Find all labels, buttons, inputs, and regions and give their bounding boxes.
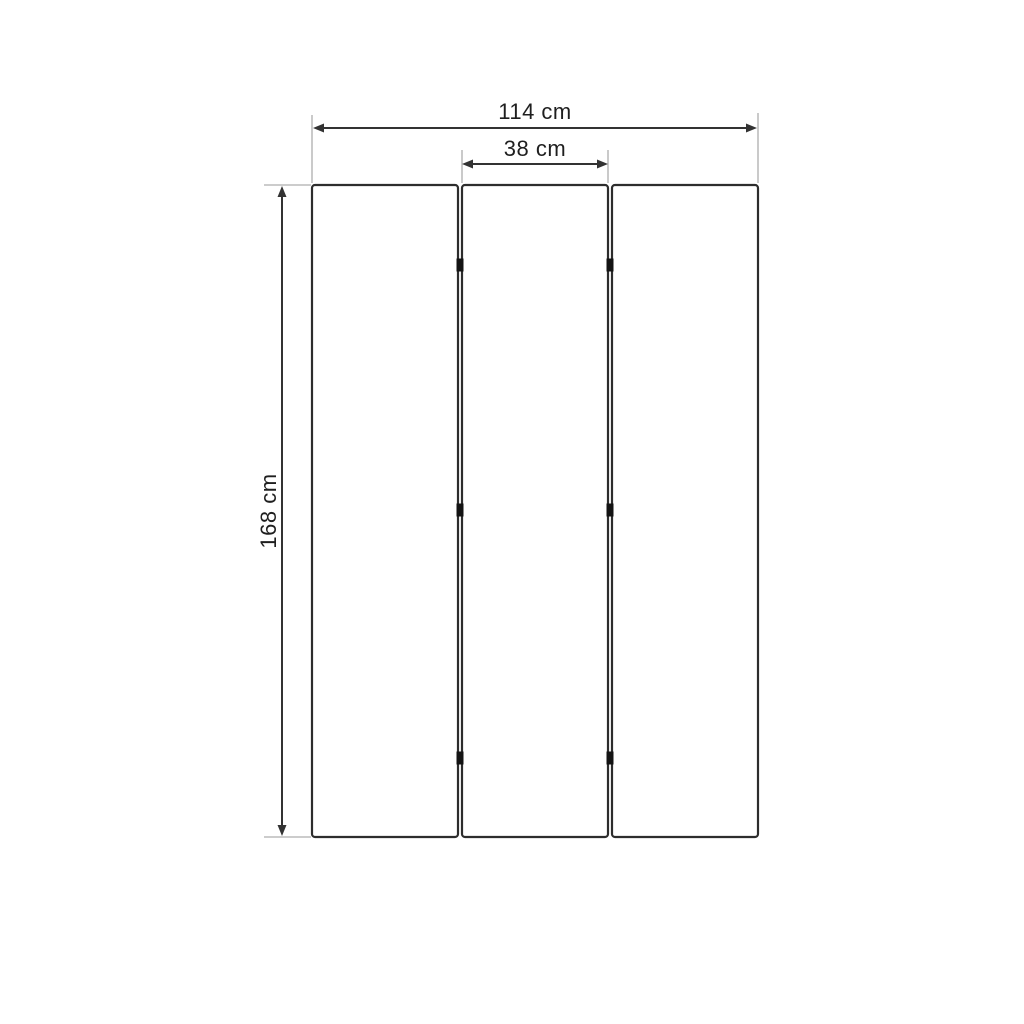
hinge-left-top (457, 259, 464, 272)
arrow-left-icon (462, 160, 473, 169)
total-width-label: 114 cm (498, 99, 572, 124)
arrow-right-icon (597, 160, 608, 169)
technical-drawing-svg: 114 cm 38 cm 168 cm (0, 0, 1024, 1024)
hinge-left-bottom (457, 752, 464, 765)
hinge-left-middle (457, 504, 464, 517)
folding-screen-dimension-diagram: 114 cm 38 cm 168 cm (0, 0, 1024, 1024)
hinge-right-top (607, 259, 614, 272)
arrow-up-icon (278, 186, 287, 197)
panel-right (612, 185, 758, 837)
panel-width-label: 38 cm (504, 136, 566, 161)
hinge-right-middle (607, 504, 614, 517)
panel-left (312, 185, 458, 837)
total-width-dimension: 114 cm (313, 99, 757, 133)
panel-width-dimension: 38 cm (462, 136, 608, 169)
arrow-left-icon (313, 124, 324, 133)
hinge-right-bottom (607, 752, 614, 765)
panel-middle (462, 185, 608, 837)
arrow-right-icon (746, 124, 757, 133)
height-dimension: 168 cm (256, 186, 287, 836)
screen-panels (312, 185, 758, 837)
height-label: 168 cm (256, 473, 281, 548)
arrow-down-icon (278, 825, 287, 836)
